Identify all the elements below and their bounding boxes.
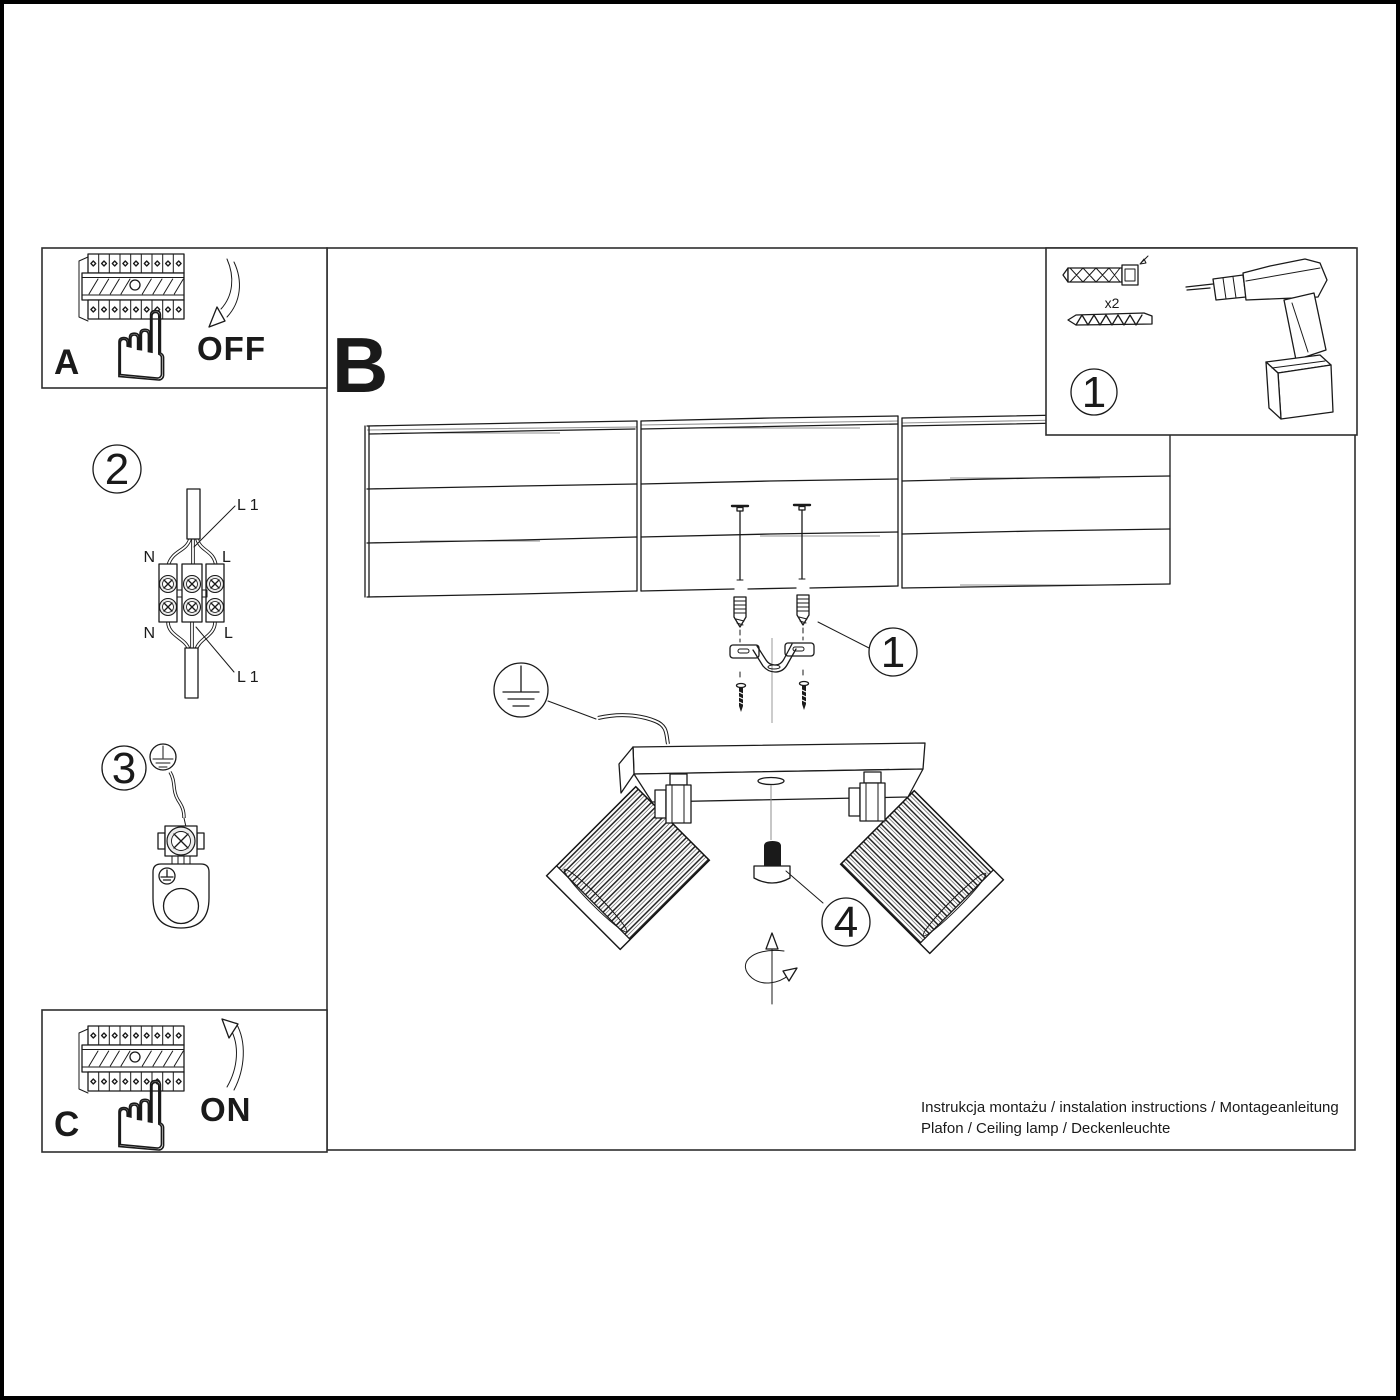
instruction-diagram: 1 4 [0, 0, 1400, 1400]
step2-number: 2 [105, 445, 129, 494]
pointing-hand-icon: ☝ [112, 1061, 170, 1173]
footer-line-2: Plafon / Ceiling lamp / Deckenleuchte [921, 1120, 1170, 1137]
ground-symbol-small-icon [150, 744, 176, 770]
wire-label-n-bottom: N [143, 625, 155, 642]
panel-c-letter: C [54, 1105, 79, 1144]
wire-label-l1-top: L 1 [237, 497, 259, 514]
screw-icon [1068, 313, 1152, 325]
on-label: ON [200, 1091, 252, 1128]
panel-c: ☝ ON C [42, 1010, 327, 1173]
wire-label-l-top: L [222, 549, 231, 566]
callout-4-number: 4 [834, 898, 858, 947]
instruction-sheet: 1 4 [0, 0, 1400, 1400]
step3-number: 3 [112, 744, 136, 793]
pointing-hand-icon: ☝ [112, 291, 170, 403]
wire-label-l-bottom: L [224, 625, 233, 642]
wire-label-l1-bottom: L 1 [237, 669, 259, 686]
footer-line-1: Instrukcja montażu / instalation instruc… [921, 1099, 1339, 1116]
off-label: OFF [197, 330, 266, 367]
step1-number: 1 [1082, 368, 1106, 417]
section-b-letter: B [332, 321, 388, 409]
panel-step1: x2 1 [1046, 248, 1357, 435]
callout-1-number: 1 [881, 628, 905, 677]
panel-a: ☝ OFF A [42, 248, 327, 403]
panel-a-letter: A [54, 343, 79, 382]
quantity-label: x2 [1105, 295, 1120, 311]
ground-lug-drawing [153, 864, 209, 928]
wire-label-n-top: N [143, 549, 155, 566]
